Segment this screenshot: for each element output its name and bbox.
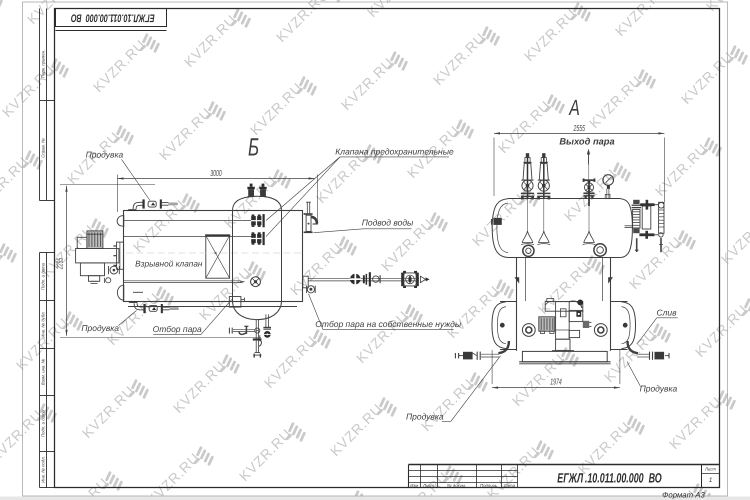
- svg-text:Формат А3: Формат А3: [662, 490, 705, 499]
- svg-text:Подп. и дата: Подп. и дата: [41, 262, 46, 290]
- svg-text:Инв. № подл.: Инв. № подл.: [41, 456, 46, 483]
- svg-text:2555: 2555: [573, 123, 585, 133]
- svg-text:Лист: Лист: [422, 483, 434, 488]
- svg-text:Подп. и дата: Подп. и дата: [41, 409, 46, 437]
- svg-text:Продувка: Продувка: [86, 150, 124, 160]
- svg-text:2295: 2295: [55, 258, 65, 270]
- svg-text:Перв. примен.: Перв. примен.: [41, 50, 46, 79]
- svg-text:Продувка: Продувка: [81, 323, 119, 333]
- svg-text:Дата: Дата: [503, 483, 516, 488]
- svg-text:Взам. инв. №: Взам. инв. №: [41, 358, 46, 385]
- svg-text:Отбор пара на собственные нужд: Отбор пара на собственные нужды: [315, 319, 462, 329]
- svg-text:Слив: Слив: [656, 308, 677, 318]
- svg-text:Лист: Лист: [704, 467, 716, 472]
- svg-text:А: А: [568, 95, 580, 120]
- svg-text:Отбор пара: Отбор пара: [153, 324, 202, 334]
- svg-text:ЕГЖЛ .10.011.00.000 ВО: ЕГЖЛ .10.011.00.000 ВО: [557, 471, 662, 486]
- svg-text:1974: 1974: [550, 377, 562, 387]
- svg-text:№ докум.: № докум.: [447, 483, 466, 488]
- svg-text:Взрывной клапан: Взрывной клапан: [135, 258, 203, 268]
- svg-text:ЕГЖЛ.10.011.00.000 ВО: ЕГЖЛ.10.011.00.000 ВО: [71, 12, 155, 24]
- svg-text:Б: Б: [248, 134, 259, 162]
- svg-text:Клапана предохранительные: Клапана предохранительные: [335, 147, 454, 157]
- svg-text:Выход пара: Выход пара: [559, 137, 614, 147]
- svg-text:Продувка: Продувка: [640, 384, 678, 394]
- svg-text:Справ. №: Справ. №: [41, 138, 46, 158]
- svg-text:Изм: Изм: [410, 483, 418, 488]
- svg-text:Подвод воды: Подвод воды: [362, 217, 414, 227]
- svg-text:Продувка: Продувка: [406, 412, 444, 422]
- svg-text:Инв. № дубл.: Инв. № дубл.: [41, 311, 46, 337]
- svg-text:1: 1: [709, 477, 713, 484]
- svg-text:3000: 3000: [210, 168, 222, 178]
- svg-text:Подпись: Подпись: [480, 483, 498, 488]
